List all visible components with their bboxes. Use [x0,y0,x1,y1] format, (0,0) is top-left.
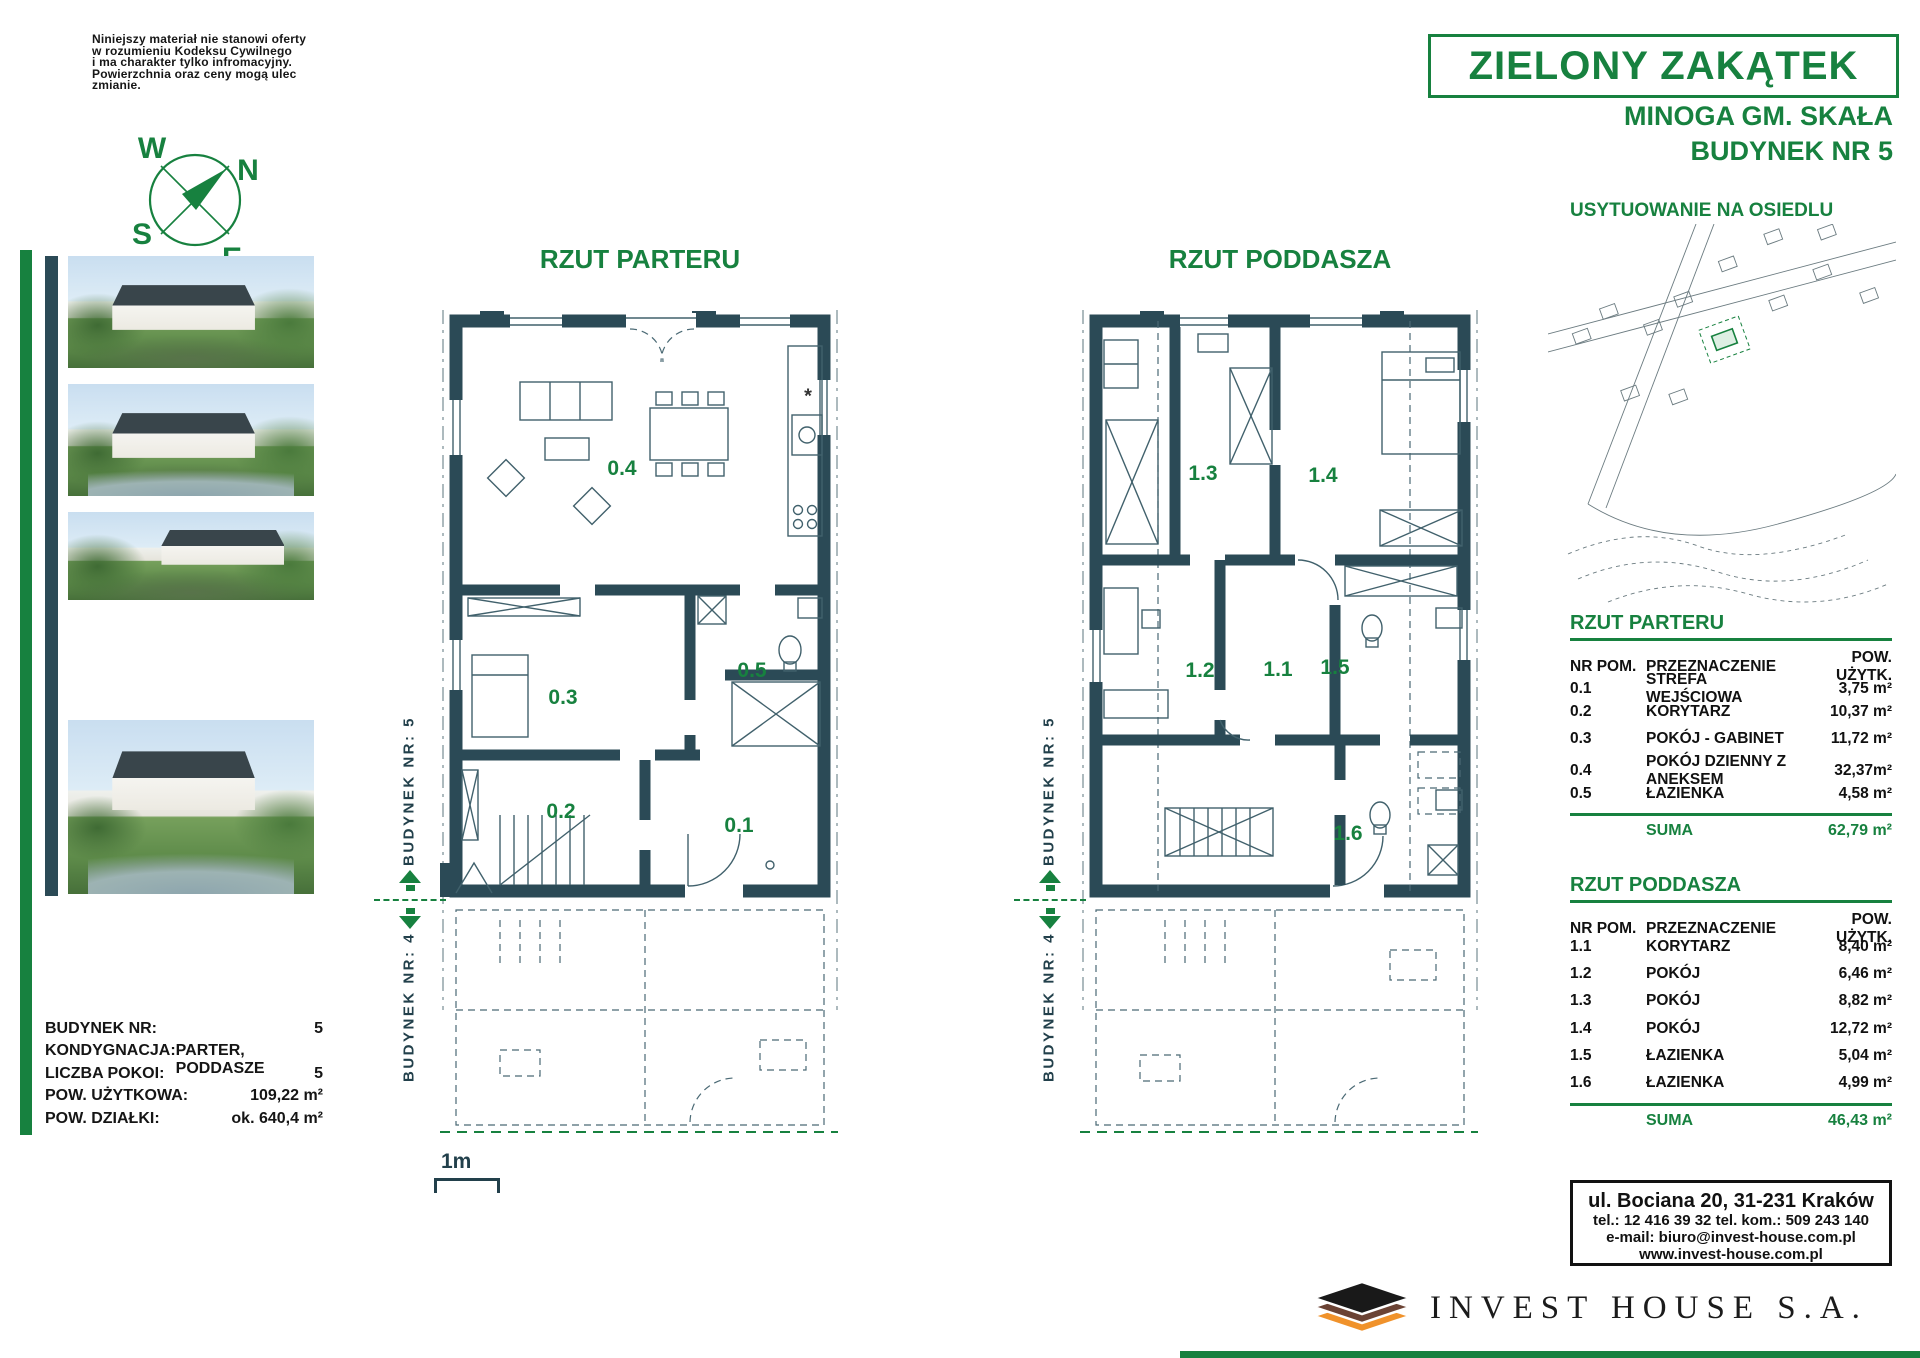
estate-photo-4 [68,720,314,894]
project-location: MINOGA GM. SKAŁA [1400,101,1893,132]
marker-building-4: BUDYNEK NR: 4 [396,932,422,1082]
cell-purpose: KORYTARZ [1646,703,1796,721]
cell-area: 12,72 m² [1796,1020,1892,1038]
disclaimer-line: zmianie. [92,80,322,92]
table-rule [1570,638,1892,641]
cell-nr: 1.1 [1570,938,1646,956]
table-header: NR POM. PRZEZNACZENIE POW. UŻYTK. [1570,911,1892,933]
room-label: 1.2 [1185,659,1214,683]
compass-w: W [138,132,167,165]
suma-label: SUMA [1646,1112,1796,1130]
cell-area: 4,99 m² [1796,1074,1892,1092]
scale-label: 1m [441,1150,471,1174]
table-suma-row: SUMA 46,43 m² [1570,1106,1892,1136]
cell-purpose: ŁAZIENKA [1646,1074,1796,1092]
table-row: 1.3 POKÓJ 8,82 m² [1570,988,1892,1015]
col-purpose: PRZEZNACZENIE [1646,920,1796,938]
cell-purpose: POKÓJ DZIENNY Z ANEKSEM [1646,753,1796,789]
table-header: NR POM. PRZEZNACZENIE POW. UŻYTK. [1570,649,1892,671]
room-label: 0.5 [737,659,766,683]
room-label: 0.1 [724,814,753,838]
contact-phone: tel.: 12 416 39 32 tel. kom.: 509 243 14… [1573,1212,1889,1229]
project-title: ZIELONY ZAKĄTEK [1469,44,1859,89]
marker-building-5: BUDYNEK NR: 5 [1036,716,1062,866]
marker-building-4: BUDYNEK NR: 4 [1036,932,1062,1082]
info-label: BUDYNEK NR: [45,1020,157,1042]
cell-nr: 1.2 [1570,965,1646,983]
contact-website: www.invest-house.com.pl [1573,1246,1889,1263]
estate-photo-2 [68,384,314,496]
table-row: 1.6 ŁAZIENKA 4,99 m² [1570,1069,1892,1096]
left-green-rail [20,250,32,1135]
cell-nr: 1.3 [1570,992,1646,1010]
suma-value: 46,43 m² [1796,1112,1892,1130]
info-row: POW. DZIAŁKI: ok. 640,4 m² [45,1110,323,1132]
cell-nr: 1.5 [1570,1047,1646,1065]
cell-area: 6,46 m² [1796,965,1892,983]
room-label: 1.5 [1320,656,1349,680]
ground-floor-plan: 0.4 0.5 0.3 0.2 0.1 * [440,310,840,1140]
room-label: 1.4 [1308,464,1337,488]
info-label: KONDYGNACJA: [45,1042,176,1064]
areas-table-poddasze: RZUT PODDASZA NR POM. PRZEZNACZENIE POW.… [1570,874,1892,1136]
cell-purpose: POKÓJ - GABINET [1646,730,1796,748]
project-title-box: ZIELONY ZAKĄTEK [1428,34,1899,98]
col-nr: NR POM. [1570,920,1646,938]
pond [88,467,295,496]
table-title: RZUT PARTERU [1570,612,1892,635]
cell-purpose: STREFA WEJŚCIOWA [1646,671,1796,707]
info-value: ok. 640,4 m² [231,1110,323,1132]
cell-area: 8,40 m² [1796,938,1892,956]
areas-table-parter: RZUT PARTERU NR POM. PRZEZNACZENIE POW. … [1570,612,1892,846]
table-row: 0.3 POKÓJ - GABINET 11,72 m² [1570,726,1892,753]
attic-floor-title: RZUT PODDASZA [1130,244,1430,275]
estate-photo-3 [68,512,314,600]
cell-purpose: POKÓJ [1646,1020,1796,1038]
arrow-up-icon [397,870,423,893]
cell-area: 8,82 m² [1796,992,1892,1010]
siteplan-title: USYTUOWANIE NA OSIEDLU [1570,200,1833,222]
cell-nr: 1.6 [1570,1074,1646,1092]
cell-area: 5,04 m² [1796,1047,1892,1065]
estate-photo-1 [68,256,314,368]
cell-area: 11,72 m² [1796,730,1892,748]
lot-divider-dash [374,899,446,901]
table-row: 1.4 POKÓJ 12,72 m² [1570,1015,1892,1042]
info-value: 109,22 m² [250,1087,323,1109]
info-label: POW. DZIAŁKI: [45,1110,160,1132]
cell-area: 10,37 m² [1796,703,1892,721]
table-row: 0.5 ŁAZIENKA 4,58 m² [1570,780,1892,807]
table-row: 0.2 KORYTARZ 10,37 m² [1570,698,1892,725]
info-label: POW. UŻYTKOWA: [45,1087,188,1109]
cell-nr: 0.3 [1570,730,1646,748]
arrow-down-icon [1037,906,1063,929]
contact-address: ul. Bociana 20, 31-231 Kraków [1573,1190,1889,1212]
room-label: 0.3 [548,686,577,710]
cell-purpose: KORYTARZ [1646,938,1796,956]
cell-area: 3,75 m² [1796,680,1892,698]
room-label: 0.2 [546,800,575,824]
cell-purpose: POKÓJ [1646,965,1796,983]
house-render [112,285,255,330]
room-label: 1.3 [1188,462,1217,486]
cell-nr: 0.2 [1570,703,1646,721]
house-render [112,413,255,458]
house-render [161,530,284,565]
table-row: 1.2 POKÓJ 6,46 m² [1570,960,1892,987]
contact-email: e-mail: biuro@invest-house.com.pl [1573,1229,1889,1246]
suma-label: SUMA [1646,822,1796,840]
cell-nr: 1.4 [1570,1020,1646,1038]
table-row: 0.4 POKÓJ DZIENNY Z ANEKSEM 32,37m² [1570,753,1892,780]
compass-n: N [237,154,259,187]
disclaimer-text: Niniejszy materiał nie stanowi oferty w … [92,34,322,92]
building-info: BUDYNEK NR: 5 KONDYGNACJA: PARTER, PODDA… [45,1020,323,1132]
scale-bar [434,1178,500,1193]
compass-s: S [132,218,152,251]
info-row: BUDYNEK NR: 5 [45,1020,323,1042]
info-label: LICZBA POKOI: [45,1065,164,1087]
table-row: 1.5 ŁAZIENKA 5,04 m² [1570,1042,1892,1069]
company-name: INVEST HOUSE S.A. [1430,1290,1900,1327]
bottom-green-strip [1180,1351,1920,1358]
cell-purpose: ŁAZIENKA [1646,1047,1796,1065]
cell-nr: 0.1 [1570,680,1646,698]
cell-purpose: ŁAZIENKA [1646,785,1796,803]
contact-box: ul. Bociana 20, 31-231 Kraków tel.: 12 4… [1570,1180,1892,1266]
info-row: POW. UŻYTKOWA: 109,22 m² [45,1087,323,1109]
cell-purpose: POKÓJ [1646,992,1796,1010]
cell-area: 4,58 m² [1796,785,1892,803]
cell-nr: 0.5 [1570,785,1646,803]
arrow-up-icon [1037,870,1063,893]
siteplan-drawing [1548,224,1896,608]
col-nr: NR POM. [1570,658,1646,676]
flyer-page: Niniejszy materiał nie stanowi oferty w … [0,0,1920,1358]
marker-building-5: BUDYNEK NR: 5 [396,716,422,866]
info-value: PARTER, PODDASZE [176,1042,323,1064]
pond [88,849,295,894]
lot-divider-dash [1014,899,1086,901]
kitchen-asterisk: * [804,386,812,409]
suma-value: 62,79 m² [1796,822,1892,840]
table-row: 1.1 KORYTARZ 8,40 m² [1570,933,1892,960]
info-value: 5 [314,1020,323,1042]
photo-slate-rail [45,256,58,896]
room-label: 0.4 [607,457,636,481]
table-suma-row: SUMA 62,79 m² [1570,816,1892,846]
house-render [112,751,255,810]
compass-rose-icon: W N S E [120,118,280,278]
invest-house-logo-icon [1310,1282,1414,1332]
cell-nr: 0.4 [1570,762,1646,780]
cell-area: 32,37m² [1796,762,1892,780]
project-building: BUDYNEK NR 5 [1400,136,1893,167]
room-label: 1.6 [1333,822,1362,846]
info-value: 5 [314,1065,323,1087]
room-label: 1.1 [1263,658,1292,682]
table-title: RZUT PODDASZA [1570,874,1892,897]
arrow-down-icon [397,906,423,929]
info-row: KONDYGNACJA: PARTER, PODDASZE [45,1042,323,1064]
ground-floor-title: RZUT PARTERU [490,244,790,275]
table-rule [1570,900,1892,903]
attic-floor-plan: 1.3 1.4 1.2 1.1 1.5 1.6 [1080,310,1480,1140]
